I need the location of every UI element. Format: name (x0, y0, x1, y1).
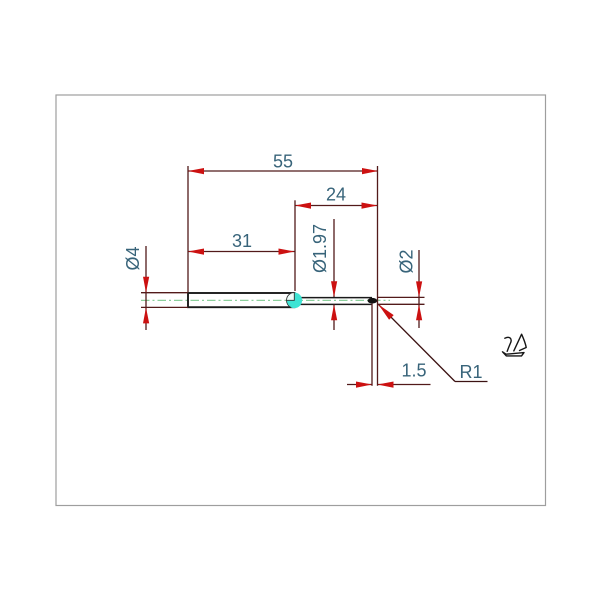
svg-text:31: 31 (232, 231, 252, 251)
svg-text:R1: R1 (459, 362, 482, 382)
svg-text:Ø2: Ø2 (397, 249, 417, 273)
svg-text:24: 24 (326, 185, 346, 205)
svg-text:Ø1.97: Ø1.97 (310, 224, 330, 273)
svg-text:55: 55 (273, 152, 293, 172)
svg-text:1.5: 1.5 (401, 361, 426, 381)
svg-text:Ø4: Ø4 (123, 246, 143, 270)
